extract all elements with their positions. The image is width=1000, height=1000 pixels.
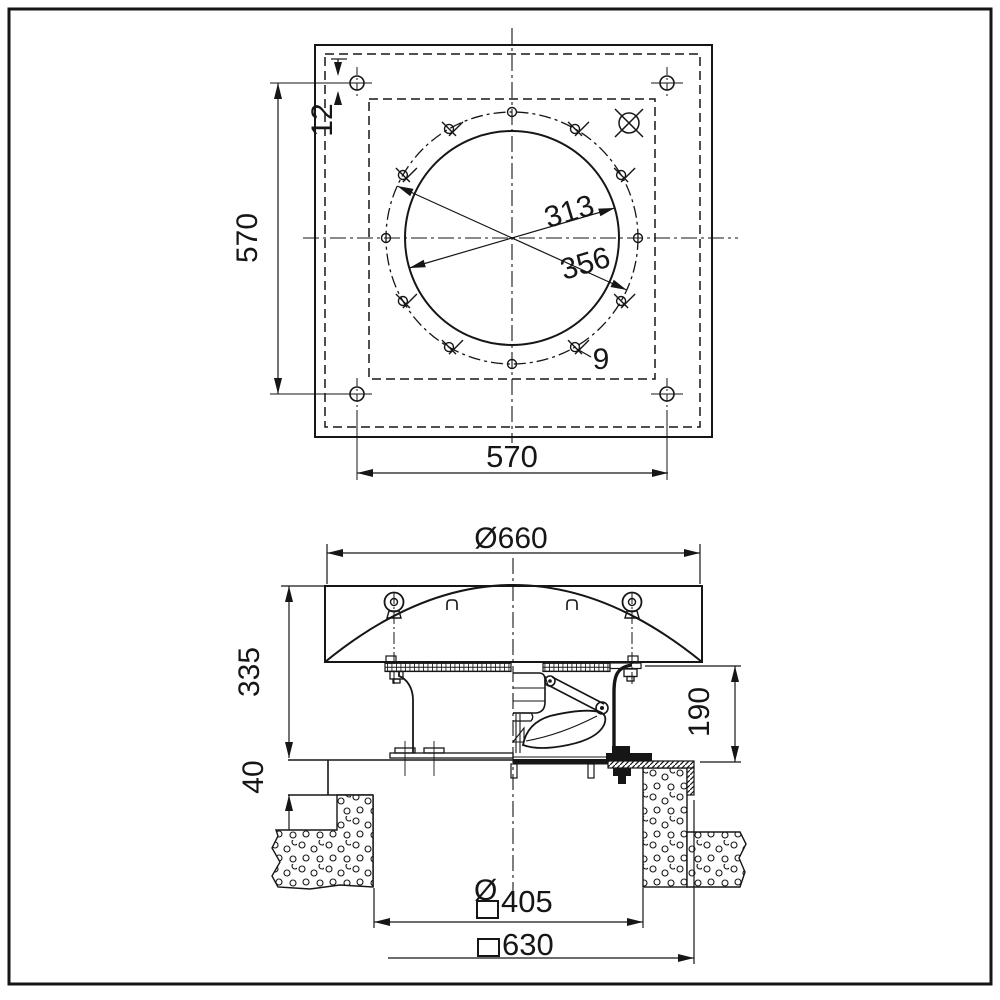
body-wall-right-section xyxy=(614,665,632,760)
hood-screw-right xyxy=(567,600,577,610)
base-plate-outline xyxy=(315,45,712,437)
dim-text-660: Ø660 xyxy=(474,522,547,555)
square-symbol-630 xyxy=(478,939,499,956)
dimension-40 xyxy=(285,795,293,830)
cable-entry-hole xyxy=(615,109,643,137)
mesh-band-right xyxy=(543,663,610,672)
dim-text-405: 405 xyxy=(501,884,553,919)
dia-symbol-405: Ø xyxy=(474,874,497,907)
dim-text-570-vertical: 570 xyxy=(231,213,264,263)
motor xyxy=(513,673,545,721)
dim-text-9: 9 xyxy=(593,343,610,376)
flange-nut-right xyxy=(624,669,637,681)
dim-text-570-horizontal: 570 xyxy=(486,439,538,474)
hole-dia-leader xyxy=(577,349,591,357)
page-border xyxy=(9,9,991,984)
mesh-band-left xyxy=(385,663,511,672)
dim-text-40: 40 xyxy=(237,760,270,793)
hood-screw-left xyxy=(447,600,457,610)
dim-text-630: 630 xyxy=(502,927,554,962)
top-view xyxy=(270,28,738,480)
spigot-tab-right xyxy=(588,764,594,778)
roof-insulation-right-field xyxy=(687,832,746,887)
roof-insulation-right-column xyxy=(643,768,687,887)
dimension-12 xyxy=(331,59,347,105)
dim-text-190: 190 xyxy=(683,687,716,737)
base-plate-left xyxy=(390,753,513,758)
dimension-570-vertical xyxy=(274,83,282,394)
impeller-blade xyxy=(513,711,605,753)
dim-text-335: 335 xyxy=(233,647,266,697)
swing-arm xyxy=(545,676,608,714)
drawing-canvas: 12 570 570 313 356 9 xyxy=(0,0,1000,1000)
roof-membrane-top xyxy=(608,761,694,768)
dimension-335 xyxy=(281,586,325,758)
spigot-tab-left xyxy=(511,764,517,778)
roof-membrane-side xyxy=(687,768,694,795)
dim-text-313: 313 xyxy=(541,189,598,235)
technical-drawing-page: 12 570 570 313 356 9 xyxy=(0,0,1000,1000)
body-wall-left xyxy=(399,671,413,753)
dim-text-12: 12 xyxy=(306,103,339,136)
